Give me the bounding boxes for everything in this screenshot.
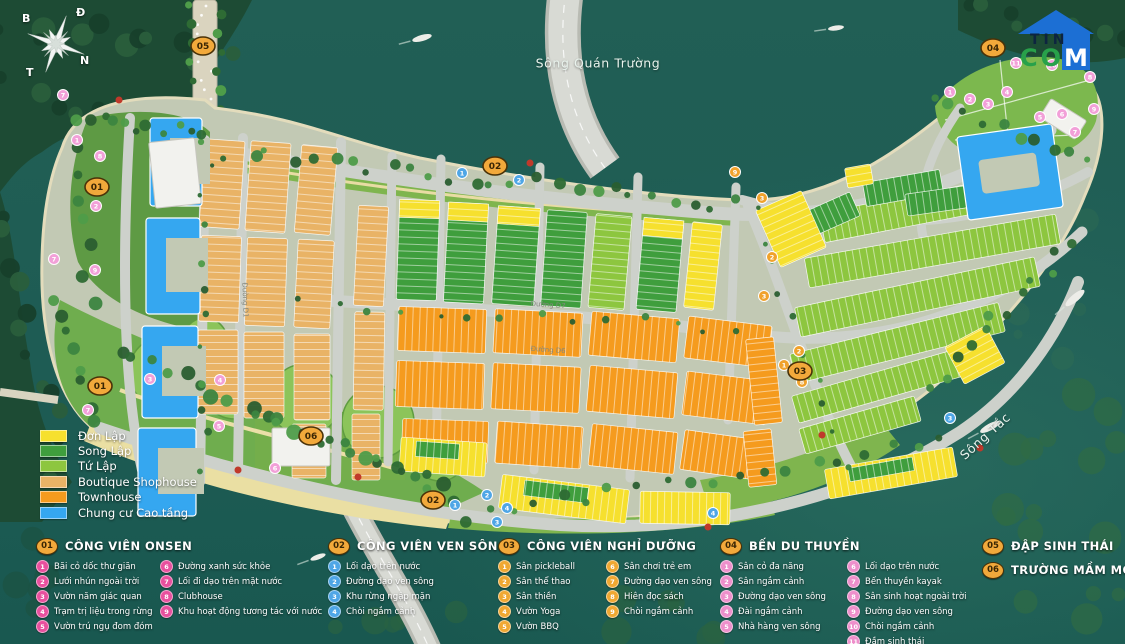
amenity-group-badge: 04 [720,538,742,555]
svg-text:2: 2 [94,202,99,210]
amenity-group-badge: 03 [498,538,520,555]
amenity-item-number: 3 [36,590,49,603]
logo-letter: O [1041,44,1064,72]
svg-text:3: 3 [148,375,153,383]
amenity-item-number: 8 [606,590,619,603]
amenity-item: 2Lưới nhún ngoài trời [36,574,154,589]
poi-dot-pink: 2 [965,94,976,105]
compass-letter: N [80,54,89,67]
amenity-item-number: 1 [328,560,341,573]
svg-text:4: 4 [505,504,510,512]
red-tree-icon [819,432,826,439]
svg-text:02: 02 [489,162,502,172]
svg-text:Đường D1: Đường D1 [240,282,249,317]
legend-row: Chung cư Cao tầng [40,505,197,520]
amenity-group-header: 01CÔNG VIÊN ONSEN [36,538,322,554]
svg-text:9: 9 [733,168,738,176]
amenity-group-title: CÔNG VIÊN NGHỈ DƯỠNG [527,539,696,553]
compass-letter: Đ [76,6,85,19]
svg-text:7: 7 [1073,128,1078,136]
apartment-building [957,124,1064,221]
block [395,360,485,409]
amenity-item-label: Trạm trị liệu trong rừng [54,607,153,617]
amenity-item-number: 9 [606,605,619,618]
amenity-item-label: Đầm sinh thái [865,637,924,644]
amenity-group-header: 06TRƯỜNG MẦM MON [982,562,1125,578]
amenity-item-label: Đường dạo ven sông [865,607,953,617]
legend-swatch [40,491,67,503]
amenity-item: 5Vườn trú ngụ đom đóm [36,619,154,634]
amenity-item-number: 5 [720,620,733,633]
poi-dot-pink: 2 [91,201,102,212]
svg-text:1: 1 [75,136,80,144]
poi-dot-pink: 5 [1035,112,1046,123]
svg-text:01: 01 [91,183,104,193]
map-badge-05: 05 [191,37,215,55]
amenity-item-label: Vườn trú ngụ đom đóm [54,622,153,632]
map-badge-06: 06 [299,427,323,445]
masterplan-screenshot: Đường D7Đường D6Đường D17182793457612345… [0,0,1125,644]
amenity-item-label: Lưới nhún ngoài trời [54,577,139,587]
amenity-group-header: 03CÔNG VIÊN NGHỈ DƯỠNG [498,538,712,554]
amenity-item-number: 3 [328,590,341,603]
svg-text:6: 6 [273,464,278,472]
svg-text:8: 8 [98,152,103,160]
legend-row: Tứ Lập [40,459,197,474]
amenity-item-label: Sân thể thao [516,577,570,587]
amenity-item-number: 7 [847,575,860,588]
legend-swatch [40,460,67,472]
map-badge-01: 01 [85,178,109,196]
amenity-items: 1Lối dạo trên nước2Đường dạo ven sông3Kh… [328,559,508,619]
amenity-group-title: ĐẬP SINH THÁI [1011,539,1114,553]
amenity-item-number: 1 [720,560,733,573]
amenity-item-label: Sân pickleball [516,562,575,572]
amenity-item-number: 3 [720,590,733,603]
amenity-item-number: 2 [328,575,341,588]
svg-text:3: 3 [495,518,500,526]
amenity-item-label: Lối đi dạo trên mặt nước [178,577,282,587]
svg-text:2: 2 [770,253,775,261]
amenity-item: 5Vườn BBQ [498,619,600,634]
amenity-group-badge: 02 [328,538,350,555]
amenity-item: 3Đường dạo ven sông [720,589,841,604]
amenity-item-number: 1 [36,560,49,573]
amenity-item-number: 10 [847,620,860,633]
poi-dot-pink: 3 [145,374,156,385]
amenity-item-label: Chòi ngắm cảnh [346,607,415,617]
amenity-item-number: 7 [606,575,619,588]
svg-text:02: 02 [427,496,440,506]
amenity-item: 4Chòi ngắm cảnh [328,604,508,619]
amenity-item: 8Hiên đọc sách [606,589,712,604]
amenity-item: 8Clubhouse [160,589,322,604]
legend-swatch [40,445,67,457]
poi-dot-blue: 4 [502,503,513,514]
legend-label: Đơn Lập [78,429,126,443]
legend-label: Chung cư Cao tầng [78,506,188,520]
amenity-item-number: 4 [720,605,733,618]
svg-text:1: 1 [782,361,787,369]
poi-dot-pink: 9 [90,265,101,276]
amenity-group-title: TRƯỜNG MẦM MON [1011,563,1125,577]
amenity-group-title: CÔNG VIÊN VEN SÔNG [357,539,508,553]
amenity-item-number: 9 [160,605,173,618]
amenity-item-number: 4 [36,605,49,618]
amenity-item: 9Khu hoạt động tương tác với nước [160,604,322,619]
amenity-item: 4Trạm trị liệu trong rừng [36,604,154,619]
amenity-item-label: Đường dạo ven sông [624,577,712,587]
amenity-item-number: 1 [498,560,511,573]
amenity-item: 2Sân ngắm cảnh [720,574,841,589]
svg-text:8: 8 [1088,73,1093,81]
svg-text:04: 04 [987,44,1000,54]
svg-text:4: 4 [1005,88,1010,96]
amenity-group-header: 02CÔNG VIÊN VEN SÔNG [328,538,508,554]
red-tree-icon [235,467,242,474]
legend-swatch [40,430,67,442]
svg-text:2: 2 [517,176,522,184]
poi-dot-orange: 2 [794,346,805,357]
amenity-item: 7Bến thuyền kayak [847,574,966,589]
amenity-item-number: 8 [160,590,173,603]
amenity-item: 2Sân thể thao [498,574,600,589]
svg-text:06: 06 [305,432,318,442]
apartment-building [142,326,206,418]
legend-label: Boutique Shophouse [78,475,197,489]
poi-dot-blue: 3 [945,413,956,424]
amenity-item-label: Clubhouse [178,592,223,602]
poi-dot-pink: 1 [945,87,956,98]
poi-dot-pink: 1 [72,135,83,146]
svg-text:5: 5 [1038,113,1043,121]
poi-dot-orange: 3 [757,193,768,204]
poi-dot-pink: 6 [1057,109,1068,120]
block [352,414,380,480]
amenity-item-number: 6 [847,560,860,573]
legend-label: Song Lập [78,444,131,458]
amenity-item-number: 6 [160,560,173,573]
amenity-item: 4Đài ngắm cảnh [720,604,841,619]
svg-text:7: 7 [61,91,66,99]
svg-text:01: 01 [94,382,107,392]
map-badge-01: 01 [88,377,112,395]
amenity-item: 7Đường dạo ven sông [606,574,712,589]
svg-text:03: 03 [794,367,807,377]
poi-dot-blue: 4 [708,508,719,519]
amenity-item: 3Khu rừng ngập mặn [328,589,508,604]
map-badge-02: 02 [483,157,507,175]
amenity-item: 6Lối dạo trên nước [847,559,966,574]
amenity-item: 7Lối đi dạo trên mặt nước [160,574,322,589]
amenity-item-label: Lối dạo trên nước [865,562,939,572]
amenity-item-number: 4 [328,605,341,618]
amenity-item-label: Chòi ngắm cảnh [865,622,934,632]
poi-dot-pink: 5 [214,421,225,432]
amenity-item-number: 2 [720,575,733,588]
legend: Đơn LậpSong LậpTứ LậpBoutique ShophouseT… [40,428,197,520]
amenity-item-number: 7 [160,575,173,588]
amenity-group-01: 01CÔNG VIÊN ONSEN1Bãi cỏ dốc thư giãn6Đư… [36,538,322,634]
amenity-item-number: 3 [498,590,511,603]
red-tree-icon [527,160,534,167]
svg-text:2: 2 [797,347,802,355]
logo-letter: C [1020,44,1041,72]
amenity-item: 11Đầm sinh thái [847,634,966,644]
amenity-group-badge: 06 [982,562,1004,579]
svg-text:2: 2 [485,491,490,499]
amenity-item-number: 8 [847,590,860,603]
amenity-item: 1Sân cỏ đa năng [720,559,841,574]
amenity-item-number: 2 [36,575,49,588]
amenity-item-label: Sân cỏ đa năng [738,562,804,572]
map-badge-03: 03 [788,362,812,380]
amenity-item: 3Vườn năm giác quan [36,589,154,604]
amenity-item-label: Lối dạo trên nước [346,562,420,572]
block [743,429,777,488]
amenity-item: 5Nhà hàng ven sông [720,619,841,634]
amenity-item-label: Khu hoạt động tương tác với nước [178,607,322,617]
block [244,237,287,326]
svg-text:9: 9 [93,266,98,274]
amenity-item-label: Sân ngắm cảnh [738,577,804,587]
amenity-group-title: CÔNG VIÊN ONSEN [65,539,192,553]
amenity-item: 6Sân chơi trẻ em [606,559,712,574]
poi-dot-pink: 6 [270,463,281,474]
poi-dot-pink: 4 [215,375,226,386]
amenity-item-number: 9 [847,605,860,618]
tincom-logo: TIN COM [1000,6,1112,74]
amenity-item-label: Sân thiền [516,592,556,602]
poi-dot-pink: 7 [83,405,94,416]
block [844,164,873,188]
block [588,311,680,363]
amenity-item: 1Bãi cỏ dốc thư giãn [36,559,154,574]
amenity-item-label: Vườn BBQ [516,622,559,632]
block [294,239,335,329]
amenity-item: 8Sân sinh hoạt ngoài trời [847,589,966,604]
poi-dot-pink: 8 [95,151,106,162]
svg-text:2: 2 [968,95,973,103]
amenity-item-label: Sân chơi trẻ em [624,562,691,572]
red-tree-icon [355,474,362,481]
svg-text:1: 1 [460,169,465,177]
block [491,363,581,414]
block [353,205,388,306]
svg-text:3: 3 [986,100,991,108]
block [443,202,488,304]
svg-text:1: 1 [453,501,458,509]
amenity-item: 9Chòi ngắm cảnh [606,604,712,619]
map-badge-02: 02 [421,491,445,509]
red-tree-icon [116,97,123,104]
poi-dot-blue: 1 [450,500,461,511]
amenity-item: 4Vườn Yoga [498,604,600,619]
amenity-item-number: 2 [498,575,511,588]
block [492,206,541,307]
svg-text:5: 5 [217,422,222,430]
svg-text:1: 1 [948,88,953,96]
svg-text:4: 4 [711,509,716,517]
svg-text:7: 7 [52,255,57,263]
river-label-song-quan-truong: Sông Quán Trường [536,56,661,71]
amenity-item-label: Đường xanh sức khỏe [178,562,270,572]
block [541,210,588,309]
poi-dot-orange: 3 [759,291,770,302]
amenity-item: 1Sân pickleball [498,559,600,574]
compass-letter: T [26,66,34,79]
amenity-item-number: 5 [36,620,49,633]
amenity-item: 2Đường dạo ven sông [328,574,508,589]
amenity-item-label: Hiên đọc sách [624,592,684,602]
poi-dot-pink: 3 [983,99,994,110]
legend-row: Đơn Lập [40,428,197,443]
amenity-group-03: 03CÔNG VIÊN NGHỈ DƯỠNG1Sân pickleball6Sâ… [498,538,712,634]
svg-text:3: 3 [760,194,765,202]
apartment-building [146,218,208,314]
amenity-group-04: 04BẾN DU THUYỀN1Sân cỏ đa năng6Lối dạo t… [720,538,966,644]
svg-text:9: 9 [1092,105,1097,113]
block [495,421,584,469]
red-tree-icon [705,524,712,531]
poi-dot-pink: 7 [49,254,60,265]
poi-dot-pink: 7 [1070,127,1081,138]
legend-row: Song Lập [40,443,197,458]
amenity-item-label: Đài ngắm cảnh [738,607,803,617]
poi-dot-orange: 9 [730,167,741,178]
svg-text:7: 7 [86,406,91,414]
amenity-item: 3Sân thiền [498,589,600,604]
amenity-items: 1Sân cỏ đa năng6Lối dạo trên nước2Sân ng… [720,559,966,644]
amenity-item-number: 6 [606,560,619,573]
legend-swatch [40,476,67,488]
amenity-group-title: BẾN DU THUYỀN [749,539,860,553]
amenity-item-label: Sân sinh hoạt ngoài trời [865,592,966,602]
amenity-item-label: Vườn năm giác quan [54,592,142,602]
amenity-group-header: 04BẾN DU THUYỀN [720,538,966,554]
svg-text:4: 4 [218,376,223,384]
block [586,365,678,418]
amenity-item-number: 5 [498,620,511,633]
compass-letter: B [22,12,30,25]
poi-dot-orange: 2 [767,252,778,263]
poi-dot-blue: 3 [492,517,503,528]
block [399,437,487,477]
amenity-item-label: Bến thuyền kayak [865,577,942,587]
block [640,491,731,525]
poi-dot-pink: 9 [1089,104,1100,115]
amenity-group-badge: 01 [36,538,58,555]
block [397,306,486,353]
legend-label: Tứ Lập [78,459,117,473]
legend-label: Townhouse [78,490,141,504]
svg-text:3: 3 [948,414,953,422]
legend-swatch [40,507,67,519]
logo-letter: M [1064,44,1091,72]
amenity-items: 1Bãi cỏ dốc thư giãn6Đường xanh sức khỏe… [36,559,322,634]
block [353,312,385,411]
amenity-item-label: Chòi ngắm cảnh [624,607,693,617]
amenity-group-06: 06TRƯỜNG MẦM MON [982,562,1125,583]
poi-dot-blue: 2 [482,490,493,501]
amenity-group-05: 05ĐẬP SINH THÁI [982,538,1114,559]
white-building [149,138,202,208]
amenity-item-label: Nhà hàng ven sông [738,622,821,632]
block [396,199,439,300]
amenity-group-02: 02CÔNG VIÊN VEN SÔNG1Lối dạo trên nước2Đ… [328,538,508,619]
amenity-items: 1Sân pickleball6Sân chơi trẻ em2Sân thể … [498,559,712,634]
amenity-item: 10Chòi ngắm cảnh [847,619,966,634]
amenity-group-header: 05ĐẬP SINH THÁI [982,538,1114,554]
svg-text:05: 05 [197,42,210,52]
block [636,217,684,312]
amenity-group-badge: 05 [982,538,1004,555]
amenity-item: 1Lối dạo trên nước [328,559,508,574]
amenity-item-label: Vườn Yoga [516,607,560,617]
poi-dot-pink: 4 [1002,87,1013,98]
amenity-item-label: Đường dạo ven sông [738,592,826,602]
poi-dot-blue: 1 [457,168,468,179]
svg-text:6: 6 [1060,110,1065,118]
logo-text-com: COM [1020,44,1091,72]
amenity-item-label: Bãi cỏ dốc thư giãn [54,562,136,572]
amenity-item-label: Đường dạo ven sông [346,577,434,587]
svg-text:3: 3 [762,292,767,300]
amenity-item: 9Đường dạo ven sông [847,604,966,619]
amenity-item: 6Đường xanh sức khỏe [160,559,322,574]
compass-rose: BĐTN [14,4,102,92]
block [588,214,632,311]
amenity-item-label: Khu rừng ngập mặn [346,592,430,602]
amenity-item-number: 11 [847,635,860,644]
poi-dot-blue: 2 [514,175,525,186]
legend-row: Townhouse [40,490,197,505]
block [294,334,330,420]
legend-row: Boutique Shophouse [40,474,197,489]
amenity-item-number: 4 [498,605,511,618]
block [588,424,678,475]
